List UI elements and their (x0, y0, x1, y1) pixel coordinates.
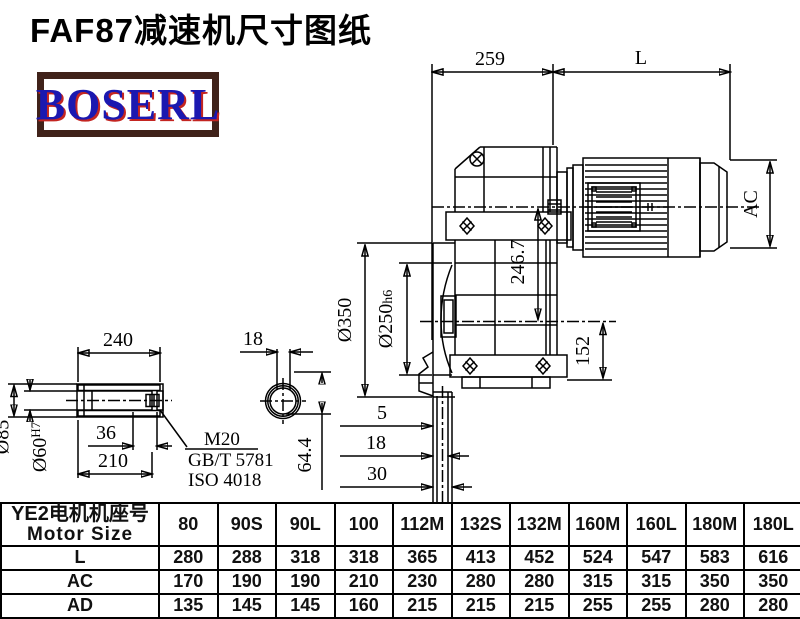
cell: 215 (393, 594, 452, 618)
cell: 210 (335, 570, 394, 594)
dim-label-L: L (635, 47, 647, 69)
row-label: L (1, 546, 159, 570)
dim-label-d350: Ø350 (334, 298, 356, 342)
thread-label: M20 (204, 429, 240, 450)
header-motor-size-en: Motor Size (2, 525, 158, 545)
col-header: 180M (686, 503, 745, 546)
dim-label-d250h6: Ø250h6 (375, 290, 397, 348)
flange-bolt-icon (460, 218, 474, 234)
cell: 452 (510, 546, 569, 570)
dim-label-152: 152 (572, 336, 594, 366)
cell: 280 (159, 546, 218, 570)
cell: 230 (393, 570, 452, 594)
cell: 583 (686, 546, 745, 570)
cell: 170 (159, 570, 218, 594)
dim-label-36: 36 (96, 422, 116, 444)
cell: 215 (510, 594, 569, 618)
col-header: 180L (744, 503, 800, 546)
flange-bolt-icon (538, 218, 552, 234)
standard-label-gb: GB/T 5781 (188, 450, 274, 471)
housing-bolt-icon (470, 152, 484, 166)
cell: 280 (744, 594, 800, 618)
dim-label-AC: AC (740, 190, 762, 218)
cell: 315 (627, 570, 686, 594)
dim-label-key-18: 18 (243, 328, 263, 350)
dimensions-main: 259 L AC 246.7 Ø350 Ø250h6 152 (334, 47, 777, 487)
cell: 288 (218, 546, 277, 570)
col-header: 132M (510, 503, 569, 546)
table-header-row: YE2电机机座号 Motor Size 80 90S 90L 100 112M … (1, 503, 800, 546)
cell: 190 (276, 570, 335, 594)
row-label: AD (1, 594, 159, 618)
cell: 350 (686, 570, 745, 594)
col-header: 90L (276, 503, 335, 546)
col-header: 100 (335, 503, 394, 546)
base-bolt-icon (536, 358, 550, 374)
col-header: 132S (452, 503, 511, 546)
cell: 160 (335, 594, 394, 618)
dim-label-259: 259 (475, 48, 505, 70)
output-flange (433, 243, 456, 397)
hollow-shaft-view: 240 Ø85 Ø60H7 36 210 M2 (0, 329, 274, 491)
cell: 547 (627, 546, 686, 570)
cell: 145 (218, 594, 277, 618)
header-motor-size-cn: YE2电机机座号 (2, 504, 158, 525)
cell: 280 (510, 570, 569, 594)
page: { "title": { "text": "FAF87减速机尺寸图纸" }, "… (0, 0, 800, 614)
dim-label-d85: Ø85 (0, 420, 14, 454)
col-header: 90S (218, 503, 277, 546)
dim-label-64-4: 64.4 (294, 438, 316, 473)
dim-label-18: 18 (366, 432, 386, 454)
motor-size-table: YE2电机机座号 Motor Size 80 90S 90L 100 112M … (0, 502, 800, 619)
cell: 524 (569, 546, 628, 570)
col-header: 80 (159, 503, 218, 546)
cell: 365 (393, 546, 452, 570)
cell: 318 (335, 546, 394, 570)
dim-label-5: 5 (377, 402, 387, 424)
col-header: 160M (569, 503, 628, 546)
col-header: 160L (627, 503, 686, 546)
dim-label-d60h7: Ø60H7 (28, 421, 51, 472)
table-row-AC: AC 170 190 190 210 230 280 280 315 315 3… (1, 570, 800, 594)
table-row-AD: AD 135 145 145 160 215 215 215 255 255 2… (1, 594, 800, 618)
page-title: FAF87减速机尺寸图纸 (30, 4, 372, 52)
cell: 315 (569, 570, 628, 594)
cell: 280 (452, 570, 511, 594)
cell: 215 (452, 594, 511, 618)
cell: 616 (744, 546, 800, 570)
torque-bracket (419, 352, 433, 396)
cell: 350 (744, 570, 800, 594)
dim-label-240: 240 (103, 329, 133, 351)
logo-text: BOSERL (36, 83, 221, 127)
cell: 255 (627, 594, 686, 618)
cell: 145 (276, 594, 335, 618)
main-assembly-view: 259 L AC 246.7 Ø350 Ø250h6 152 (334, 47, 777, 505)
cell: 190 (218, 570, 277, 594)
cell: 135 (159, 594, 218, 618)
table-row-L: L 280 288 318 318 365 413 452 524 547 58… (1, 546, 800, 570)
boserl-logo: BOSERL (37, 72, 219, 137)
standard-label-iso: ISO 4018 (188, 470, 261, 491)
dim-label-30: 30 (367, 463, 387, 485)
header-motor-size: YE2电机机座号 Motor Size (1, 503, 159, 546)
cell: 255 (569, 594, 628, 618)
cell: 318 (276, 546, 335, 570)
base-bolt-icon (463, 358, 477, 374)
cell: 413 (452, 546, 511, 570)
dim-label-210: 210 (98, 450, 128, 472)
dim-label-246-7: 246.7 (507, 240, 529, 285)
col-header: 112M (393, 503, 452, 546)
row-label: AC (1, 570, 159, 594)
cell: 280 (686, 594, 745, 618)
